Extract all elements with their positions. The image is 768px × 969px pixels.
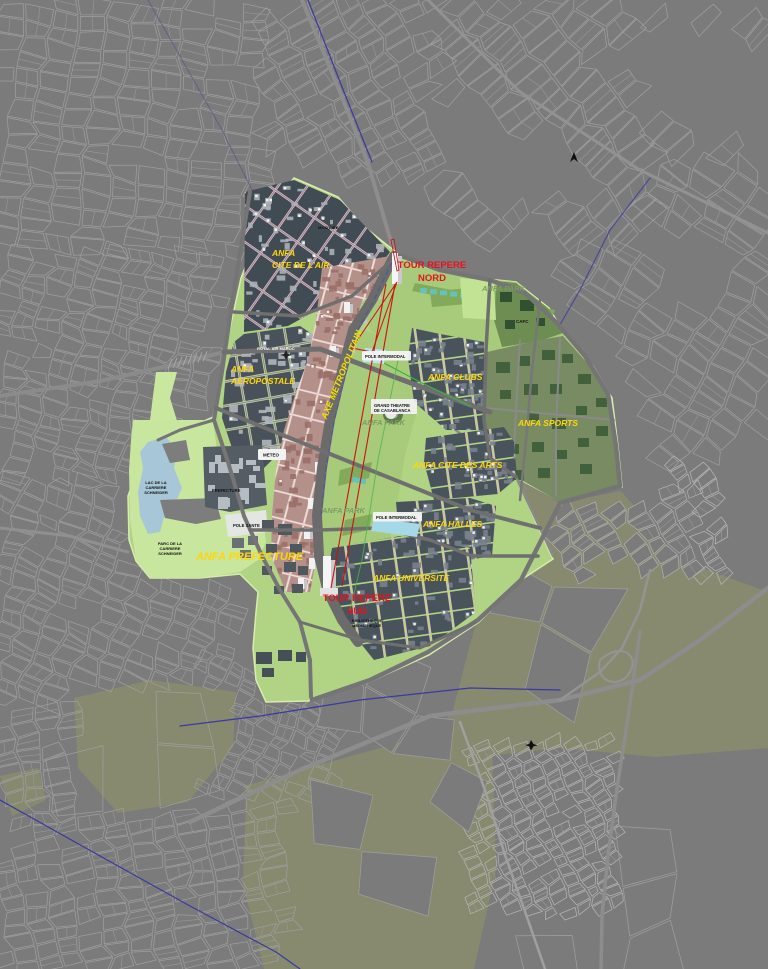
svg-text:ANFA: ANFA (271, 248, 295, 258)
svg-text:DE CASABLANCA: DE CASABLANCA (374, 408, 411, 413)
svg-text:SCHNEIDER: SCHNEIDER (144, 490, 168, 495)
svg-text:AEROPOSTALE: AEROPOSTALE (230, 376, 295, 386)
svg-text:ANFA: ANFA (230, 364, 254, 374)
svg-text:ANFA UNIVERSITE: ANFA UNIVERSITE (372, 573, 450, 583)
svg-text:PREFECTURE: PREFECTURE (212, 488, 241, 493)
svg-text:SCHNEIDER: SCHNEIDER (158, 551, 182, 556)
svg-text:NORD: NORD (418, 273, 446, 284)
svg-text:ANFA CLUBS: ANFA CLUBS (427, 372, 483, 382)
svg-text:ANFA HALLES: ANFA HALLES (422, 519, 483, 529)
svg-text:CITE DE L’AIR: CITE DE L’AIR (272, 260, 330, 270)
svg-text:TOUR REPERE: TOUR REPERE (323, 593, 391, 604)
svg-text:POLE INTERMODAL: POLE INTERMODAL (365, 354, 406, 359)
svg-text:MEDIATHEQUE: MEDIATHEQUE (352, 623, 382, 628)
svg-text:MOSQUEE: MOSQUEE (318, 225, 339, 230)
svg-text:ANFA PREFECTURE: ANFA PREFECTURE (195, 551, 304, 563)
svg-text:ROYAL AIR MAROC: ROYAL AIR MAROC (257, 346, 295, 351)
svg-text:ANFA PARK: ANFA PARK (361, 418, 406, 427)
svg-text:ANFA PARK: ANFA PARK (481, 284, 526, 293)
svg-text:METEO: METEO (263, 453, 280, 458)
svg-text:ANFA PARK: ANFA PARK (321, 506, 366, 515)
svg-text:POLE INTERMODAL: POLE INTERMODAL (376, 515, 417, 520)
svg-text:CAFC: CAFC (516, 319, 529, 324)
svg-text:POLE SANTE: POLE SANTE (233, 523, 260, 528)
svg-text:ANFA CITE DES ARTS: ANFA CITE DES ARTS (412, 460, 503, 470)
svg-text:TOUR REPERE: TOUR REPERE (398, 260, 466, 271)
svg-text:ANFA SPORTS: ANFA SPORTS (517, 418, 578, 428)
svg-text:SUD: SUD (347, 606, 367, 617)
